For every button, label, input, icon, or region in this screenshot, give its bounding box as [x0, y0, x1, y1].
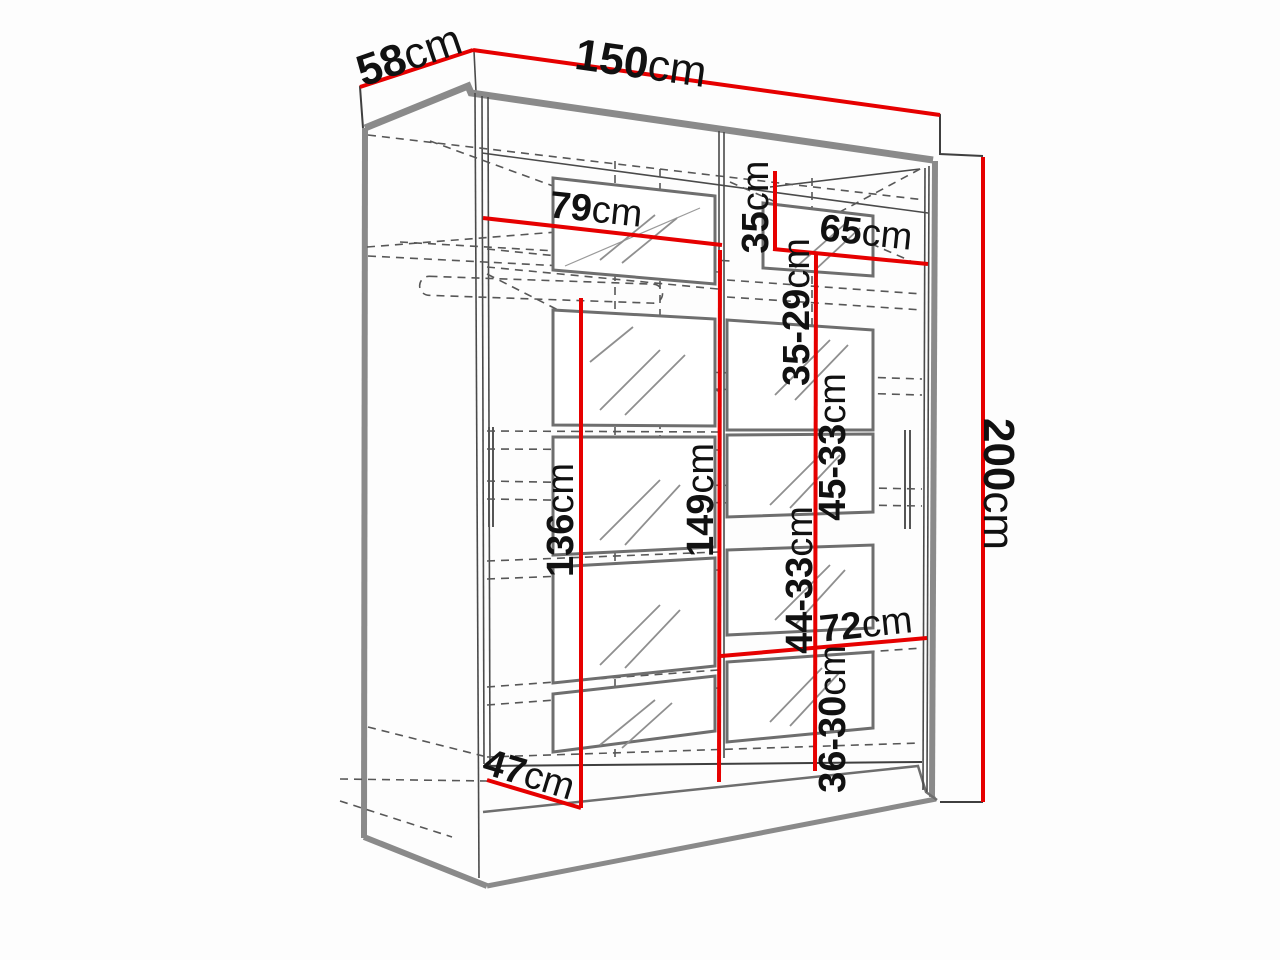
side-front-edge	[475, 93, 479, 878]
dim-label-top-shelf-height: 35cm	[735, 161, 777, 254]
plinth-bottom-edge	[487, 799, 936, 886]
left-side-edge	[364, 128, 365, 838]
dim-label-left-section-height: 136cm	[540, 463, 582, 577]
left-side-bottom-edge	[364, 837, 487, 886]
left-door-edge	[482, 96, 484, 764]
dim-label-height: 200cm	[975, 418, 1024, 550]
dim-label-shelf-gap-2: 45-33cm	[812, 373, 854, 521]
clothes-rail	[419, 276, 663, 303]
dim-label-shelf-gap-3: 44-33cm	[779, 506, 821, 654]
left-door-mirror-2	[553, 310, 715, 426]
dim-label-depth: 58cm	[350, 14, 468, 95]
left-door-mirror-5	[553, 676, 715, 752]
wardrobe-dimension-diagram: 58cm 150cm 200cm 79cm 35cm 65cm 35-29cm …	[0, 0, 1280, 960]
dim-label-shelf-gap-4: 36-30cm	[812, 645, 854, 793]
diagram-canvas: 58cm 150cm 200cm 79cm 35cm 65cm 35-29cm …	[0, 0, 1280, 960]
dim-label-middle-height: 149cm	[680, 443, 722, 557]
dim-label-shelf-gap-1: 35-29cm	[776, 238, 818, 386]
dim-label-width: 150cm	[572, 30, 710, 97]
right-door-edge	[923, 168, 925, 790]
right-side-edge	[932, 161, 935, 797]
dim-label-bottom-shelf-width: 72cm	[818, 599, 915, 650]
